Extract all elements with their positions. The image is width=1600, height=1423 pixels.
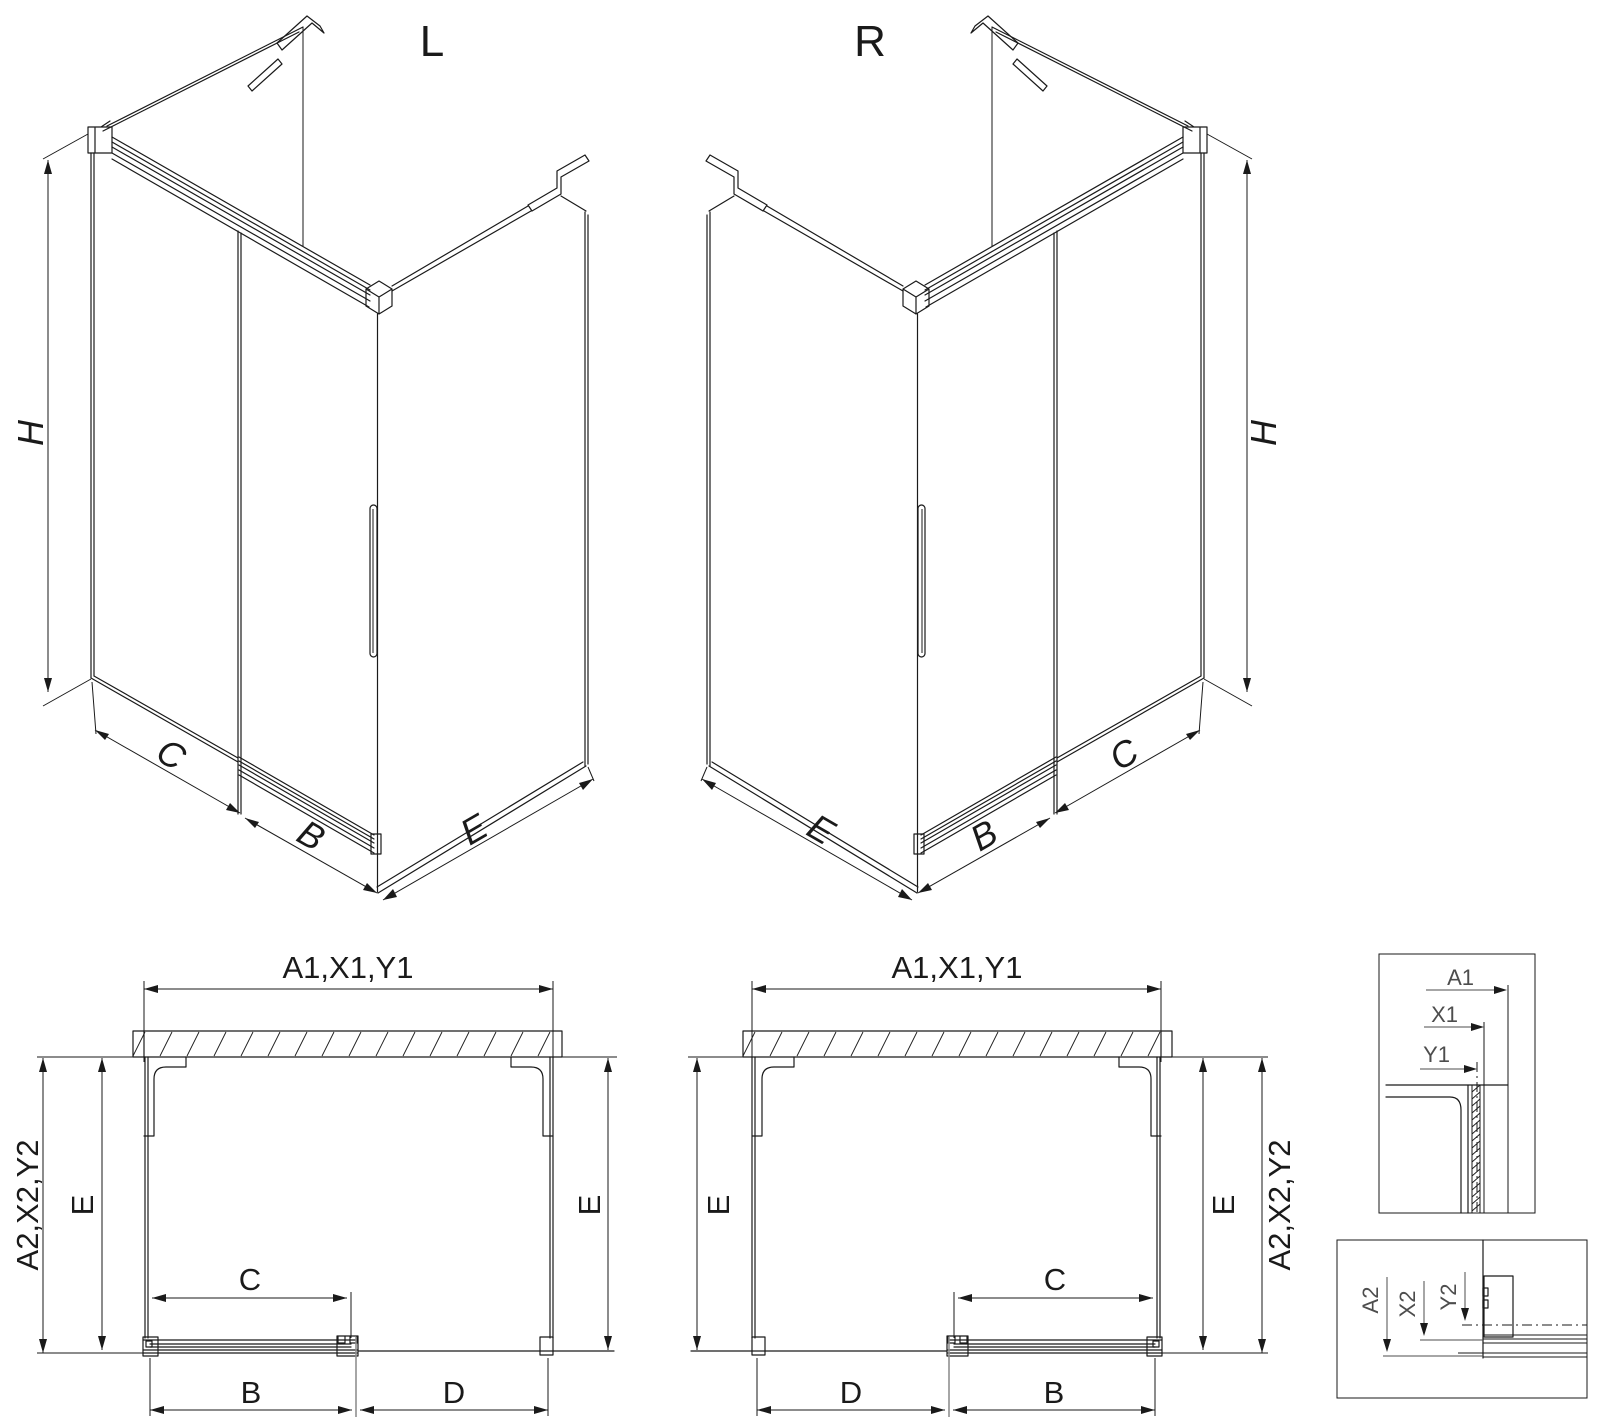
iso-right-dim-height: H	[1243, 419, 1284, 446]
iso-right-geometry	[701, 16, 1252, 900]
detail-bottom-box	[1337, 1240, 1587, 1398]
detail-bottom-dim-y2: Y2	[1436, 1284, 1461, 1311]
plan-left-dim-side: A2,X2,Y2	[10, 1140, 45, 1271]
technical-drawing: L R H C B E H C B E A1,X1,Y1 A2,X2,Y2 E …	[0, 0, 1600, 1423]
detail-bottom-dim-x2: X2	[1395, 1291, 1420, 1318]
plan-left-dim-e-left: E	[65, 1195, 100, 1216]
plan-left-dim-b: B	[241, 1375, 262, 1410]
plan-right-dim-e-left: E	[701, 1195, 736, 1216]
plan-left-dim-e-right: E	[572, 1195, 607, 1216]
detail-top-dim-y1: Y1	[1423, 1042, 1450, 1067]
iso-left-title: L	[420, 17, 444, 66]
plan-left-dim-c: C	[239, 1262, 261, 1297]
iso-right-dim-e: E	[801, 805, 843, 853]
plan-right-dim-top: A1,X1,Y1	[892, 950, 1023, 985]
plan-right-dim-c: C	[1044, 1262, 1066, 1297]
iso-left-dim-e: E	[453, 805, 495, 853]
detail-top-dim-a1: A1	[1447, 965, 1474, 990]
plan-right-dim-d: D	[840, 1375, 862, 1410]
detail-bottom-dim-a2: A2	[1358, 1287, 1383, 1314]
iso-right-title: R	[854, 17, 886, 66]
detail-top-dim-x1: X1	[1431, 1002, 1458, 1027]
plan-left-wall-hatch	[133, 1032, 550, 1056]
plan-right-dim-e-right: E	[1206, 1195, 1241, 1216]
iso-right-dim-b: B	[963, 811, 1004, 859]
iso-left-geometry	[43, 16, 594, 900]
plan-right-dim-b: B	[1044, 1375, 1065, 1410]
plan-right-wall-hatch	[743, 1032, 1160, 1056]
detail-top-box	[1379, 954, 1535, 1213]
iso-left-dim-c: C	[150, 730, 194, 779]
plan-right-dim-side: A2,X2,Y2	[1262, 1140, 1297, 1271]
iso-left-dim-height: H	[10, 419, 51, 446]
iso-left-dim-b: B	[291, 811, 332, 859]
plan-left-dim-top: A1,X1,Y1	[283, 950, 414, 985]
plan-left-dim-d: D	[443, 1375, 465, 1410]
drawing-stage: L R H C B E H C B E A1,X1,Y1 A2,X2,Y2 E …	[0, 0, 1600, 1423]
iso-right-dim-c: C	[1102, 729, 1146, 778]
